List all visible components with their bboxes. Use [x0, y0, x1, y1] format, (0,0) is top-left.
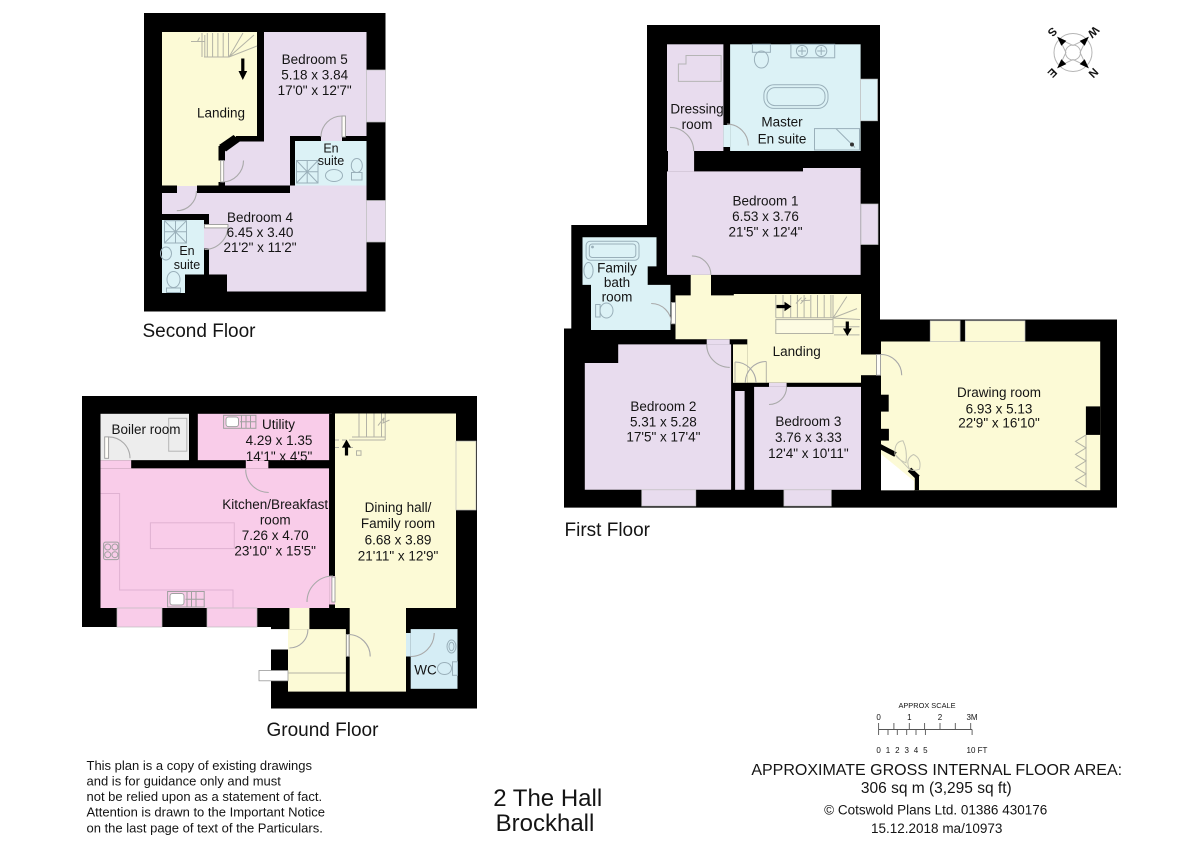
svg-text:0: 0	[876, 746, 881, 755]
svg-text:Second Floor: Second Floor	[143, 321, 257, 342]
svg-text:17'0" x 12'7": 17'0" x 12'7"	[278, 83, 352, 98]
svg-text:1: 1	[907, 713, 912, 722]
svg-text:Family: Family	[597, 260, 637, 275]
svg-text:0: 0	[876, 713, 881, 722]
svg-text:4.29 x 1.35: 4.29 x 1.35	[246, 433, 313, 448]
svg-text:15.12.2018 ma/10973: 15.12.2018 ma/10973	[871, 821, 1002, 836]
svg-text:Landing: Landing	[197, 106, 245, 121]
svg-text:Bedroom 5: Bedroom 5	[282, 52, 348, 67]
svg-text:6.53 x 3.76: 6.53 x 3.76	[732, 209, 799, 224]
svg-text:Attention is drawn to the Impo: Attention is drawn to the Important Noti…	[87, 805, 325, 820]
svg-text:Bedroom 3: Bedroom 3	[775, 414, 841, 429]
svg-text:APPROXIMATE GROSS INTERNAL FLO: APPROXIMATE GROSS INTERNAL FLOOR AREA:	[751, 762, 1122, 779]
svg-text:Family room: Family room	[361, 516, 435, 531]
svg-text:6.68 x 3.89: 6.68 x 3.89	[365, 533, 432, 548]
svg-text:Dressing: Dressing	[670, 102, 723, 117]
svg-text:Boiler room: Boiler room	[111, 422, 180, 437]
svg-text:First Floor: First Floor	[565, 520, 651, 541]
svg-text:Landing: Landing	[773, 344, 821, 359]
svg-text:W: W	[1085, 23, 1101, 39]
svg-text:1: 1	[886, 746, 891, 755]
svg-text:3.76 x 3.33: 3.76 x 3.33	[775, 430, 842, 445]
svg-text:En suite: En suite	[758, 132, 807, 147]
svg-text:room: room	[260, 512, 291, 527]
svg-text:and is for guidance only and m: and is for guidance only and must	[87, 774, 282, 789]
svg-text:room: room	[602, 290, 633, 305]
svg-text:room: room	[682, 117, 713, 132]
svg-text:Bedroom 4: Bedroom 4	[227, 210, 294, 225]
svg-text:Ground Floor: Ground Floor	[267, 720, 380, 741]
svg-text:not be relied upon as a statem: not be relied upon as a statement of fac…	[87, 789, 323, 804]
svg-text:on the last page of text of th: on the last page of text of the Particul…	[87, 820, 323, 835]
svg-text:5.31 x 5.28: 5.31 x 5.28	[630, 414, 697, 429]
svg-text:5.18 x 3.84: 5.18 x 3.84	[281, 68, 348, 83]
svg-text:3: 3	[904, 746, 909, 755]
svg-text:This plan is a copy of existin: This plan is a copy of existing drawings	[87, 758, 313, 773]
svg-text:Brockhall: Brockhall	[496, 810, 595, 837]
svg-text:bath: bath	[604, 275, 630, 290]
svg-text:10 FT: 10 FT	[967, 746, 988, 755]
svg-text:APPROX SCALE: APPROX SCALE	[898, 701, 955, 710]
svg-text:E: E	[1045, 65, 1059, 79]
svg-text:23'10" x 15'5": 23'10" x 15'5"	[234, 543, 316, 558]
svg-text:21'2" x 11'2": 21'2" x 11'2"	[223, 240, 296, 255]
svg-text:2: 2	[895, 746, 900, 755]
svg-text:WC: WC	[414, 663, 437, 678]
svg-text:Kitchen/Breakfast: Kitchen/Breakfast	[222, 497, 328, 512]
svg-text:14'1" x 4'5": 14'1" x 4'5"	[246, 449, 313, 464]
svg-text:2 The Hall: 2 The Hall	[493, 785, 602, 812]
svg-text:suite: suite	[318, 154, 344, 168]
svg-text:© Cotswold Plans Ltd. 01386 43: © Cotswold Plans Ltd. 01386 430176	[824, 802, 1047, 817]
svg-text:17'5" x 17'4": 17'5" x 17'4"	[626, 429, 700, 444]
svg-text:En: En	[179, 244, 194, 258]
svg-text:4: 4	[914, 746, 919, 755]
svg-text:12'4" x 10'11": 12'4" x 10'11"	[768, 446, 849, 461]
svg-text:Dining hall/: Dining hall/	[365, 500, 432, 515]
svg-text:7.26 x 4.70: 7.26 x 4.70	[242, 528, 309, 543]
svg-text:6.45 x 3.40: 6.45 x 3.40	[227, 225, 294, 240]
svg-text:Master: Master	[761, 115, 803, 130]
svg-text:306 sq m (3,295 sq ft): 306 sq m (3,295 sq ft)	[861, 780, 1012, 797]
svg-text:suite: suite	[174, 258, 200, 272]
svg-text:Drawing room: Drawing room	[957, 385, 1041, 400]
svg-text:2: 2	[938, 713, 943, 722]
svg-text:21'5" x 12'4": 21'5" x 12'4"	[728, 224, 802, 239]
svg-text:Bedroom 2: Bedroom 2	[630, 399, 696, 414]
svg-text:22'9" x 16'10": 22'9" x 16'10"	[958, 416, 1040, 431]
svg-text:S: S	[1045, 24, 1059, 38]
svg-text:3M: 3M	[966, 713, 977, 722]
svg-text:6.93 x 5.13: 6.93 x 5.13	[966, 401, 1033, 416]
svg-text:21'11" x 12'9": 21'11" x 12'9"	[358, 549, 439, 564]
svg-text:Utility: Utility	[262, 417, 295, 432]
svg-text:5: 5	[923, 746, 928, 755]
svg-text:Bedroom 1: Bedroom 1	[732, 194, 798, 209]
